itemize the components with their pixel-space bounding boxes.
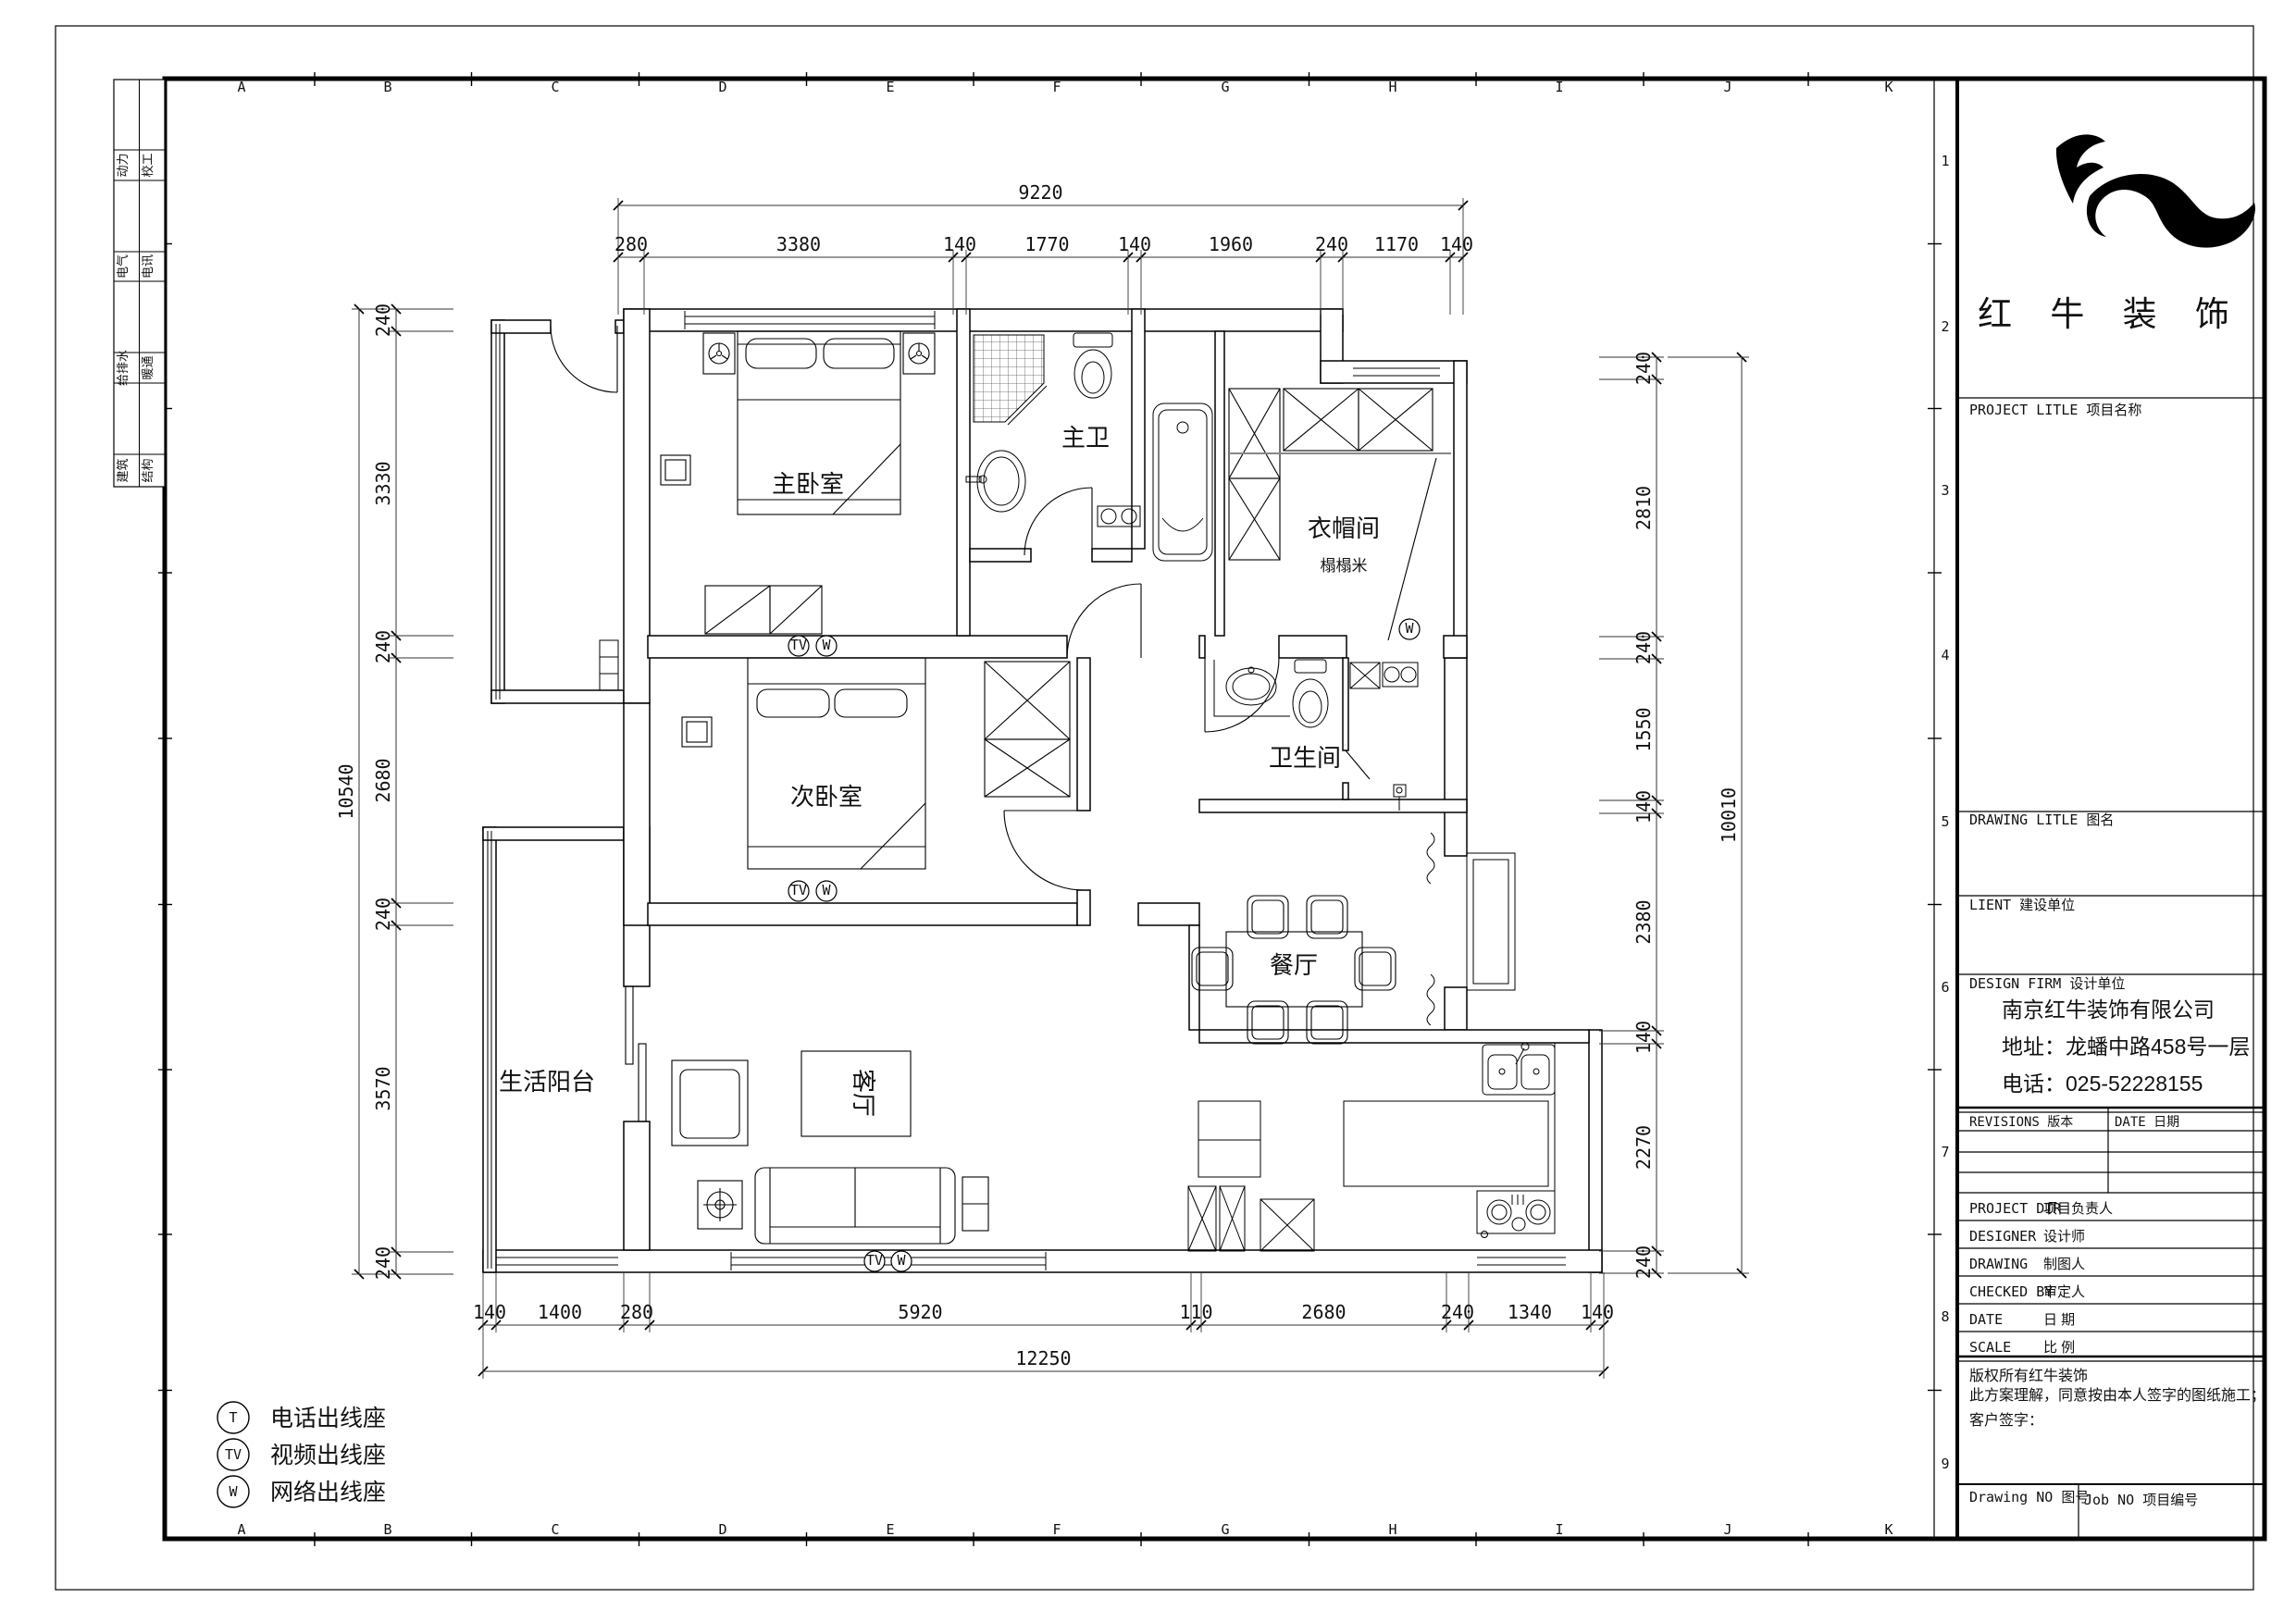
room-label: 主卧室 <box>772 470 844 498</box>
tb-row-en: DESIGNER <box>1969 1228 2037 1245</box>
nightstand <box>703 333 735 374</box>
tb-row-zh: 审定人 <box>2043 1284 2085 1300</box>
grid-letter: I <box>1555 79 1563 95</box>
dimension-label: 240 <box>1632 1245 1655 1279</box>
firm-name: 南京红牛装饰有限公司 <box>2002 997 2215 1022</box>
outlet-symbol-text: W <box>897 1252 906 1269</box>
dimension-label: 140 <box>943 233 976 255</box>
copyright-line1: 版权所有红牛装饰 <box>1969 1368 2088 1384</box>
dimension-label: 9220 <box>1018 181 1062 204</box>
tb-row-zh: 制图人 <box>2043 1257 2085 1272</box>
grid-number: 2 <box>1941 318 1949 335</box>
drawing-sheet: AABBCCDDEEFFGGHHIIJJKK123456789 动力校工电气电讯… <box>0 0 2296 1623</box>
dimension-label: 5920 <box>898 1301 942 1323</box>
grid-letter: I <box>1555 1521 1563 1538</box>
dimension-label: 240 <box>372 304 394 337</box>
dimension-label: 1400 <box>538 1301 582 1323</box>
project-title-label: PROJECT LITLE 项目名称 <box>1969 402 2141 418</box>
grid-letter: B <box>383 1521 391 1538</box>
floor-drain-icon <box>1394 785 1406 797</box>
outlet-symbol-text: W <box>822 882 831 898</box>
discipline-label: 建筑 <box>116 458 130 482</box>
grid-letter: G <box>1221 1521 1229 1538</box>
dimension-label: 1960 <box>1209 233 1253 255</box>
dimension-label: 280 <box>614 233 648 255</box>
dimension-label: 240 <box>1632 631 1655 664</box>
room-label: 主卫 <box>1061 424 1110 452</box>
grid-letter: K <box>1884 79 1893 95</box>
legend-label: 电话出线座 <box>270 1406 386 1431</box>
dimension-label: 10540 <box>335 763 357 819</box>
grid-number: 4 <box>1941 647 1949 663</box>
kitchen-counter <box>1344 1101 1548 1186</box>
dimension-label: 110 <box>1179 1301 1212 1323</box>
coffee-table-icon <box>698 1181 742 1229</box>
revisions-label: REVISIONS 版本 <box>1969 1115 2073 1130</box>
dimension-label: 1550 <box>1632 707 1655 751</box>
discipline-label: 校工 <box>141 153 155 177</box>
dimension-label: 240 <box>1441 1301 1474 1323</box>
bed-icon <box>748 658 925 869</box>
floor-plan: 主卧室主卫衣帽间榻榻米次卧室卫生间餐厅客厅生活阳台 TVWTVWWTVW <box>483 309 1602 1272</box>
room-label: 生活阳台 <box>499 1068 595 1096</box>
grid-number: 7 <box>1941 1144 1949 1160</box>
sheet-frame <box>56 26 2265 1590</box>
grid-letter: D <box>718 1521 726 1538</box>
client-label: LIENT 建设单位 <box>1969 897 2075 913</box>
dimension-label: 140 <box>1632 1021 1655 1054</box>
discipline-label: 动力 <box>116 153 130 177</box>
grid-letter: F <box>1052 1521 1061 1538</box>
dimension-label: 1770 <box>1024 233 1069 255</box>
design-firm-label: DESIGN FIRM 设计单位 <box>1969 975 2125 992</box>
shower-icon <box>974 335 1044 422</box>
dimension-label: 140 <box>1118 233 1151 255</box>
lamp-icon <box>709 343 729 364</box>
grid-number: 3 <box>1941 482 1949 499</box>
grid-letter: A <box>237 79 245 95</box>
title-block: 红 牛 装 饰 PROJECT LITLE 项目名称 DRAWING LITLE… <box>1957 134 2265 1539</box>
tv-cabinet-icon <box>672 1060 748 1146</box>
dimension-label: 280 <box>620 1301 653 1323</box>
grid-number: 5 <box>1941 813 1949 830</box>
dimension-label: 240 <box>1315 233 1348 255</box>
tb-row-zh: 项目负责人 <box>2043 1201 2113 1217</box>
legend-symbol-text: W <box>229 1483 238 1500</box>
toilet-icon <box>1293 660 1328 727</box>
dimension-label: 1340 <box>1508 1301 1552 1323</box>
dimension-label: 140 <box>1581 1301 1614 1323</box>
date-col-label: DATE 日期 <box>2115 1115 2179 1130</box>
company-logo-icon <box>2056 134 2255 247</box>
dimension-label: 3330 <box>372 461 394 505</box>
dimension-label: 240 <box>372 1246 394 1280</box>
dimension-label: 2380 <box>1632 899 1655 944</box>
steps <box>600 640 618 690</box>
dimension-label: 2810 <box>1632 486 1655 530</box>
drawing-no-label: Drawing NO 图号 <box>1969 1489 2089 1505</box>
grid-letter: C <box>551 79 559 95</box>
grid-letter: F <box>1052 79 1061 95</box>
kitchen-sink-icon <box>1483 1043 1555 1095</box>
grid-letter: J <box>1723 1521 1731 1538</box>
room-label: 榻榻米 <box>1321 557 1368 575</box>
dimension-label: 2680 <box>1301 1301 1346 1323</box>
dimension-label: 12250 <box>1015 1347 1071 1369</box>
grid-number: 9 <box>1941 1456 1949 1472</box>
tb-row-en: DATE <box>1969 1311 2003 1328</box>
sofa-icon <box>755 1168 955 1244</box>
stove-icon <box>1477 1191 1555 1238</box>
legend-label: 视频出线座 <box>270 1443 386 1468</box>
grid-letter: D <box>718 79 726 95</box>
copyright-line2: 此方案理解，同意按由本人签字的图纸施工； <box>1969 1386 2265 1404</box>
firm-address: 地址：龙蟠中路458号一层 <box>2002 1035 2250 1059</box>
tb-row-zh: 比 例 <box>2043 1340 2075 1356</box>
floor-plan-canvas: AABBCCDDEEFFGGHHIIJJKK123456789 动力校工电气电讯… <box>0 0 2296 1623</box>
grid-letter: H <box>1388 1521 1396 1538</box>
outlet-symbol-text: W <box>822 637 831 653</box>
toilet-icon <box>1074 333 1112 398</box>
discipline-label: 给排水 <box>116 350 130 386</box>
legend: T电话出线座TV视频出线座W网络出线座 <box>217 1402 386 1507</box>
grid-number: 6 <box>1941 979 1949 996</box>
dimension-label: 2680 <box>372 758 394 802</box>
room-label: 餐厅 <box>1270 951 1318 979</box>
discipline-label: 电讯 <box>141 254 155 279</box>
dimension-label: 3570 <box>372 1066 394 1110</box>
nightstand <box>903 333 935 374</box>
discipline-label: 结构 <box>141 458 155 482</box>
doors <box>551 326 1436 1121</box>
dimension-label: 3380 <box>776 233 821 255</box>
firm-phone: 电话：025-52228155 <box>2002 1072 2203 1096</box>
dimension-label: 240 <box>1632 352 1655 385</box>
tb-row-zh: 日 期 <box>2043 1312 2075 1328</box>
tb-row-en: CHECKED BY <box>1969 1283 2053 1300</box>
tb-row-en: SCALE <box>1969 1339 2011 1356</box>
grid-number: 8 <box>1941 1308 1949 1325</box>
title-block-rows: PROJECT DIR项目负责人DESIGNER设计师DRAWING制图人CHE… <box>1969 1200 2113 1356</box>
grid-letter: B <box>383 79 391 95</box>
dimension-label: 240 <box>372 630 394 663</box>
outlet-symbol-text: TV <box>790 882 807 898</box>
company-name: 红 牛 装 饰 <box>1978 296 2244 334</box>
grid-letter: K <box>1884 1521 1893 1538</box>
dimension-label: 1170 <box>1374 233 1419 255</box>
tb-row-zh: 设计师 <box>2043 1229 2085 1245</box>
outlet-symbol-text: TV <box>866 1252 883 1269</box>
legend-symbol-text: T <box>229 1409 237 1426</box>
tb-row-en: DRAWING <box>1969 1256 2028 1272</box>
dimension-label: 10010 <box>1718 787 1740 843</box>
room-label: 次卧室 <box>790 783 863 811</box>
dimension-label: 140 <box>1440 233 1473 255</box>
outlet-symbol-text: TV <box>790 637 807 653</box>
grid-letter: E <box>886 79 894 95</box>
lamp-icon <box>909 343 929 364</box>
legend-label: 网络出线座 <box>270 1480 386 1505</box>
room-label: 卫生间 <box>1269 744 1341 772</box>
dimension-label: 140 <box>473 1301 506 1323</box>
furniture <box>661 331 1451 1244</box>
grid-number: 1 <box>1941 153 1949 169</box>
discipline-label: 暖通 <box>141 355 155 379</box>
bathtub-icon <box>1153 403 1212 561</box>
grid-letter: E <box>886 1521 894 1538</box>
basin-icon <box>966 451 1025 512</box>
dimension-label: 140 <box>1632 790 1655 824</box>
customer-sign-label: 客户签字： <box>1969 1412 2043 1429</box>
dimension-label: 2270 <box>1632 1125 1655 1170</box>
outlet-symbol-text: W <box>1405 620 1414 637</box>
room-label: 客厅 <box>850 1069 877 1117</box>
job-no-label: Job NO 项目编号 <box>2084 1492 2198 1508</box>
room-label: 衣帽间 <box>1308 514 1380 542</box>
grid-letter: G <box>1221 79 1229 95</box>
grid-letter: C <box>551 1521 559 1538</box>
legend-symbol-text: TV <box>225 1446 242 1463</box>
drawing-title-label: DRAWING LITLE 图名 <box>1969 811 2114 828</box>
discipline-table: 动力校工电气电讯给排水暖通建筑结构 <box>114 80 165 487</box>
discipline-label: 电气 <box>116 254 130 279</box>
dimension-label: 240 <box>372 898 394 931</box>
grid-letter: H <box>1388 79 1396 95</box>
grid-letter: J <box>1723 79 1731 95</box>
grid-letter: A <box>237 1521 245 1538</box>
